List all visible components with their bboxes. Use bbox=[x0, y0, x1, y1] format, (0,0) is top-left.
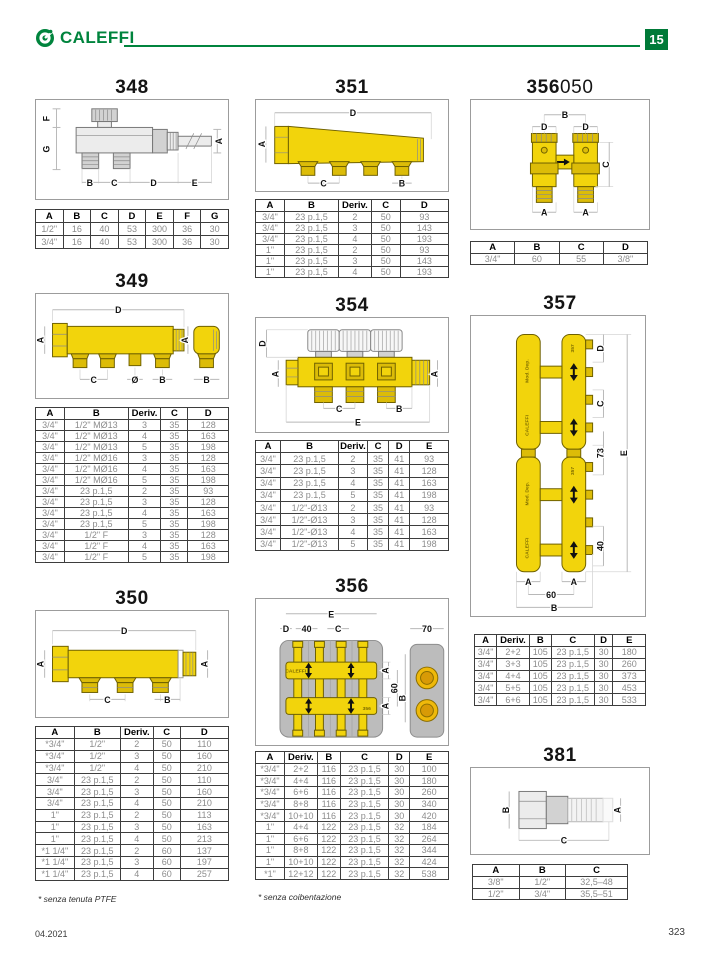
dim-label-d-left: D bbox=[541, 122, 548, 132]
column-header: C bbox=[161, 408, 188, 420]
dim-label-c: C bbox=[601, 161, 611, 168]
table-row: 3/4"5+510523 p.1,530453 bbox=[475, 682, 646, 694]
table-cell: 23 p.1,5 bbox=[64, 519, 128, 530]
table-cell: 50 bbox=[371, 223, 400, 234]
figure-dep-text-1: Mod. Dep. bbox=[524, 359, 530, 383]
table-cell: 23 p.1,5 bbox=[74, 809, 120, 821]
table-row: *3/4"8+811623 p.1,530340 bbox=[256, 798, 449, 810]
figure-model-text-1: 357 bbox=[570, 344, 576, 352]
table-cell: 163 bbox=[410, 526, 449, 538]
table-cell: 4 bbox=[120, 833, 153, 845]
column-header: Deriv. bbox=[338, 441, 367, 453]
table-row: 3/4"1/2" F335128 bbox=[36, 530, 229, 541]
table-row: 3/4"1/2" MØ13435163 bbox=[36, 431, 229, 442]
dimension-table-351: ABDeriv.CD3/4"23 p.1,5250933/4"23 p.1,53… bbox=[255, 199, 449, 278]
dim-label-diameter: Ø bbox=[132, 375, 139, 385]
table-cell: 2 bbox=[120, 739, 153, 751]
footnote-350: * senza tenuta PTFE bbox=[38, 894, 116, 904]
table-row: *3/4"2+211623 p.1,530100 bbox=[256, 764, 449, 776]
table-cell: 3/8" bbox=[473, 877, 520, 889]
table-cell: 23 p.1,5 bbox=[74, 856, 120, 868]
table-cell: 36 bbox=[173, 223, 201, 236]
table-header-row: ABDeriv.CD bbox=[256, 200, 449, 212]
table-cell: 50 bbox=[371, 256, 400, 267]
table-row: 3/4"4+410523 p.1,530373 bbox=[475, 670, 646, 682]
table-cell: 163 bbox=[188, 541, 229, 552]
dimension-table-348: ABCDEFG1/2"16405330036303/4"164053300363… bbox=[35, 209, 229, 249]
table-cell: 184 bbox=[410, 821, 449, 833]
table-cell: 35 bbox=[367, 453, 388, 465]
table-cell: *1 1/4" bbox=[36, 856, 75, 868]
table-cell: 36 bbox=[173, 236, 201, 249]
table-cell: 23 p.1,5 bbox=[74, 845, 120, 857]
table-cell: 50 bbox=[371, 267, 400, 278]
table-cell: 23 p.1,5 bbox=[551, 647, 594, 659]
table-cell: 1" bbox=[256, 845, 285, 857]
table-cell: 35 bbox=[161, 475, 188, 486]
table-row: 3/4"23 p.1,5350160 bbox=[36, 786, 229, 798]
table-header-row: ABCDEFG bbox=[36, 210, 229, 223]
table-cell: 2+2 bbox=[497, 647, 529, 659]
dim-label-c: C bbox=[336, 404, 343, 414]
table-cell: 23 p.1,5 bbox=[74, 868, 120, 880]
table-row: 1"23 p.1,5450193 bbox=[256, 267, 449, 278]
table-cell: 41 bbox=[389, 501, 410, 513]
column-header: G bbox=[201, 210, 229, 223]
table-cell: 35 bbox=[161, 541, 188, 552]
dim-label-a-left: A bbox=[525, 577, 532, 587]
table-row: 1/2"1640533003630 bbox=[36, 223, 229, 236]
column-header: E bbox=[410, 441, 449, 453]
table-cell: 41 bbox=[389, 526, 410, 538]
table-cell: 3/4" bbox=[256, 501, 281, 513]
table-cell: 41 bbox=[389, 453, 410, 465]
table-cell: 23 p.1,5 bbox=[281, 477, 339, 489]
table-cell: 1/2" MØ13 bbox=[64, 431, 128, 442]
modular-manifold-figure-357: Mod. Dep. CALEFFI 357 Mod. Dep. CALEFFI … bbox=[516, 335, 592, 572]
dim-label-c: C bbox=[320, 179, 327, 189]
table-cell: 3/4" bbox=[36, 453, 65, 464]
table-cell: 1/2" bbox=[74, 750, 120, 762]
diagram-354: D A A C B E bbox=[255, 317, 449, 433]
dim-label-d: D bbox=[350, 108, 356, 118]
table-row: 1"23 p.1,525093 bbox=[256, 245, 449, 256]
table-cell: 1/2" MØ13 bbox=[64, 442, 128, 453]
table-cell: 1" bbox=[256, 856, 285, 868]
table-cell: 41 bbox=[389, 465, 410, 477]
table-row: 1"4+412223 p.1,532184 bbox=[256, 821, 449, 833]
table-cell: 23 p.1,5 bbox=[551, 670, 594, 682]
table-cell: 3/4" bbox=[256, 526, 281, 538]
table-cell: 264 bbox=[410, 833, 449, 845]
table-cell: 40 bbox=[91, 236, 119, 249]
table-row: *3/4"4+411623 p.1,530180 bbox=[256, 775, 449, 787]
table-cell: 4 bbox=[120, 868, 153, 880]
table-cell: 3/4" bbox=[256, 234, 285, 245]
table-cell: 5 bbox=[128, 442, 161, 453]
figure-brand-text-2: CALEFFI bbox=[524, 537, 530, 558]
table-cell: 210 bbox=[180, 797, 228, 809]
table-cell: 128 bbox=[188, 497, 229, 508]
table-cell: 35 bbox=[367, 489, 388, 501]
table-row: 3/4"23 p.1,553541198 bbox=[256, 489, 449, 501]
column-header: Deriv. bbox=[497, 635, 529, 647]
dim-label-c: C bbox=[91, 375, 98, 385]
table-cell: 5 bbox=[338, 489, 367, 501]
h-valve-figure-356050 bbox=[530, 133, 599, 202]
table-cell: 4 bbox=[338, 526, 367, 538]
table-cell: 3/4" bbox=[475, 682, 497, 694]
table-cell: 198 bbox=[410, 489, 449, 501]
table-cell: 35 bbox=[367, 526, 388, 538]
dim-label-a-right: A bbox=[180, 336, 190, 343]
column-header: C bbox=[340, 752, 388, 764]
table-cell: *3/4" bbox=[256, 775, 285, 787]
table-cell: 116 bbox=[317, 798, 340, 810]
table-row: 3/4"23 p.1,523593 bbox=[36, 486, 229, 497]
table-cell: 35 bbox=[367, 538, 388, 550]
manifold-figure-350 bbox=[53, 646, 196, 692]
column-header: Deriv. bbox=[128, 408, 161, 420]
table-cell: 197 bbox=[180, 856, 228, 868]
table-cell: 23 p.1,5 bbox=[284, 267, 338, 278]
table-cell: 1/2"-Ø13 bbox=[281, 514, 339, 526]
table-row: 3/4"1/2"-Ø132354193 bbox=[256, 501, 449, 513]
table-cell: 30 bbox=[594, 647, 613, 659]
footer-date: 04.2021 bbox=[35, 929, 68, 939]
table-header-row: ABDeriv.CD bbox=[36, 408, 229, 420]
column-header: D bbox=[118, 210, 146, 223]
table-cell: 105 bbox=[529, 658, 551, 670]
table-cell: 160 bbox=[180, 750, 228, 762]
table-cell: 3/4" bbox=[36, 530, 65, 541]
table-cell: 60 bbox=[153, 845, 180, 857]
table-cell: 3 bbox=[128, 420, 161, 431]
table-cell: 50 bbox=[153, 739, 180, 751]
table-cell: 4 bbox=[120, 797, 153, 809]
column-header: Deriv. bbox=[284, 752, 317, 764]
table-cell: 41 bbox=[389, 538, 410, 550]
table-cell: 3/4" bbox=[256, 489, 281, 501]
table-cell: 137 bbox=[180, 845, 228, 857]
column-header: E bbox=[410, 752, 449, 764]
table-cell: 23 p.1,5 bbox=[64, 497, 128, 508]
table-cell: 116 bbox=[317, 787, 340, 799]
table-row: 3/4"23 p.1,533541128 bbox=[256, 465, 449, 477]
table-cell: 300 bbox=[146, 223, 174, 236]
table-cell: 50 bbox=[153, 750, 180, 762]
table-cell: 198 bbox=[188, 552, 229, 563]
table-cell: 4 bbox=[128, 508, 161, 519]
diagram-356050: B D D C A A bbox=[470, 99, 650, 230]
table-cell: 105 bbox=[529, 647, 551, 659]
table-cell: 3 bbox=[338, 465, 367, 477]
table-cell: 32 bbox=[389, 833, 410, 845]
table-cell: 163 bbox=[410, 477, 449, 489]
column-header: B bbox=[519, 865, 566, 877]
table-row: 1/2"3/4"35,5–51 bbox=[473, 888, 628, 900]
table-cell: 30 bbox=[594, 670, 613, 682]
dim-label-c: C bbox=[561, 836, 568, 846]
column-header: A bbox=[256, 441, 281, 453]
table-cell: 110 bbox=[180, 774, 228, 786]
dim-label-g: G bbox=[42, 145, 52, 152]
table-cell: 160 bbox=[180, 786, 228, 798]
table-cell: 3/4" bbox=[256, 477, 281, 489]
table-row: 3/4"1/2" MØ16535198 bbox=[36, 475, 229, 486]
table-cell: 122 bbox=[317, 821, 340, 833]
table-cell: 23 p.1,5 bbox=[340, 764, 388, 776]
table-cell: 60 bbox=[515, 254, 559, 265]
table-cell: 23 p.1,5 bbox=[340, 810, 388, 822]
table-row: *1"12+1212223 p.1,532538 bbox=[256, 868, 449, 880]
dim-label-c: C bbox=[111, 178, 118, 188]
table-cell: 193 bbox=[400, 234, 448, 245]
table-cell: 1" bbox=[256, 245, 285, 256]
table-cell: 538 bbox=[410, 868, 449, 880]
table-cell: 100 bbox=[410, 764, 449, 776]
table-cell: 23 p.1,5 bbox=[340, 833, 388, 845]
table-cell: 1/2"-Ø13 bbox=[281, 538, 339, 550]
table-cell: 122 bbox=[317, 845, 340, 857]
table-row: 3/4"1/2" MØ16335128 bbox=[36, 453, 229, 464]
table-cell: 300 bbox=[146, 236, 174, 249]
table-row: 1"23 p.1,5250113 bbox=[36, 809, 229, 821]
dim-label-b: B bbox=[562, 110, 568, 120]
chapter-badge: 15 bbox=[645, 29, 668, 50]
table-cell: 3/4" bbox=[36, 464, 65, 475]
dim-label-a-left: A bbox=[36, 660, 46, 667]
dim-label-73: 73 bbox=[595, 448, 605, 458]
table-cell: 128 bbox=[410, 514, 449, 526]
table-cell: 1/2" bbox=[74, 739, 120, 751]
dimension-table-381: ABC3/8"1/2"32,5–481/2"3/4"35,5–51 bbox=[472, 864, 628, 900]
table-cell: 93 bbox=[188, 486, 229, 497]
table-cell: *1 1/4" bbox=[36, 868, 75, 880]
table-cell: 4 bbox=[128, 464, 161, 475]
table-cell: 10+10 bbox=[284, 856, 317, 868]
table-cell: 260 bbox=[613, 658, 646, 670]
table-cell: 4 bbox=[128, 431, 161, 442]
table-cell: 2 bbox=[338, 501, 367, 513]
dimension-table-356050: ABCD3/4"60553/8" bbox=[470, 241, 648, 265]
column-header: E bbox=[146, 210, 174, 223]
table-cell: 193 bbox=[400, 267, 448, 278]
table-cell: 533 bbox=[613, 694, 646, 706]
table-header-row: ABC bbox=[473, 865, 628, 877]
table-cell: 23 p.1,5 bbox=[340, 856, 388, 868]
dimension-table-357: ADeriv.BCDE3/4"2+210523 p.1,5301803/4"3+… bbox=[474, 634, 646, 706]
table-cell: 3/4" bbox=[36, 442, 65, 453]
table-cell: 3 bbox=[338, 223, 371, 234]
title-350: 350 bbox=[35, 588, 229, 610]
table-cell: 40 bbox=[91, 223, 119, 236]
table-cell: 50 bbox=[153, 786, 180, 798]
table-cell: 105 bbox=[529, 694, 551, 706]
dim-label-d: D bbox=[258, 340, 268, 346]
table-cell: 60 bbox=[153, 868, 180, 880]
table-cell: 1/2" bbox=[74, 762, 120, 774]
column-header: C bbox=[551, 635, 594, 647]
table-row: 3/4"23 p.1,525093 bbox=[256, 212, 449, 223]
table-row: *1 1/4"23 p.1,5360197 bbox=[36, 856, 229, 868]
table-cell: 3 bbox=[120, 856, 153, 868]
manifold-figure-351 bbox=[275, 126, 424, 175]
table-cell: 35 bbox=[161, 552, 188, 563]
column-header: C bbox=[91, 210, 119, 223]
table-cell: 5 bbox=[338, 538, 367, 550]
table-cell: 12+12 bbox=[284, 868, 317, 880]
dim-label-d: D bbox=[595, 345, 605, 352]
table-row: 1"23 p.1,5350163 bbox=[36, 821, 229, 833]
table-row: 3/4"23 p.1,5450193 bbox=[256, 234, 449, 245]
table-row: 3/4"1/2"-Ø1343541163 bbox=[256, 526, 449, 538]
table-cell: 30 bbox=[201, 223, 229, 236]
table-row: *1 1/4"23 p.1,5260137 bbox=[36, 845, 229, 857]
column-header: Deriv. bbox=[120, 727, 153, 739]
dim-label-d: D bbox=[115, 305, 121, 315]
table-cell: 6+6 bbox=[284, 833, 317, 845]
table-cell: 3/4" bbox=[36, 431, 65, 442]
table-row: *1 1/4"23 p.1,5460257 bbox=[36, 868, 229, 880]
table-cell: 23 p.1,5 bbox=[281, 453, 339, 465]
table-cell: 420 bbox=[410, 810, 449, 822]
table-cell: 4 bbox=[120, 762, 153, 774]
table-cell: 5 bbox=[128, 519, 161, 530]
table-cell: 23 p.1,5 bbox=[74, 833, 120, 845]
figure-model-text: 356 bbox=[363, 706, 371, 712]
table-cell: 128 bbox=[410, 465, 449, 477]
dim-label-b: B bbox=[397, 695, 407, 701]
dim-label-e: E bbox=[192, 178, 198, 188]
table-header-row: ABDeriv.CD bbox=[36, 727, 229, 739]
diagram-381: B A C bbox=[470, 767, 650, 855]
insulated-manifold-figure-356: CALEFFI 356 bbox=[280, 640, 444, 737]
table-cell: 2 bbox=[128, 486, 161, 497]
table-cell: 23 p.1,5 bbox=[281, 465, 339, 477]
footer-page-number: 323 bbox=[640, 927, 685, 938]
column-header: Deriv. bbox=[338, 200, 371, 212]
table-cell: 5 bbox=[128, 552, 161, 563]
table-cell: 3/4" bbox=[471, 254, 515, 265]
table-cell: 128 bbox=[188, 420, 229, 431]
table-cell: 3/4" bbox=[256, 538, 281, 550]
dim-label-e: E bbox=[619, 450, 629, 456]
table-cell: 50 bbox=[153, 774, 180, 786]
dim-label-a-left: A bbox=[36, 336, 46, 343]
table-cell: 35 bbox=[161, 453, 188, 464]
table-cell: 3/4" bbox=[36, 519, 65, 530]
table-cell: 3/4" bbox=[36, 774, 75, 786]
table-cell: 35 bbox=[367, 465, 388, 477]
table-cell: 35 bbox=[161, 497, 188, 508]
table-cell: 5+5 bbox=[497, 682, 529, 694]
table-cell: 163 bbox=[180, 821, 228, 833]
dim-label-a-left: A bbox=[541, 208, 548, 218]
table-cell: 3/4" bbox=[475, 670, 497, 682]
diagram-356: CALEFFI 356 E D 40 C 70 A A 60 B bbox=[255, 598, 449, 746]
table-cell: *1" bbox=[256, 868, 285, 880]
column-header: A bbox=[36, 727, 75, 739]
column-header: C bbox=[153, 727, 180, 739]
table-cell: 23 p.1,5 bbox=[64, 486, 128, 497]
table-cell: 3/4" bbox=[475, 694, 497, 706]
table-cell: 2 bbox=[338, 245, 371, 256]
table-cell: 143 bbox=[400, 256, 448, 267]
valve-figure-348 bbox=[76, 109, 211, 169]
dim-label-a-right: A bbox=[582, 208, 589, 218]
table-cell: 3 bbox=[120, 786, 153, 798]
table-cell: *3/4" bbox=[256, 798, 285, 810]
table-cell: 23 p.1,5 bbox=[340, 845, 388, 857]
table-cell: 23 p.1,5 bbox=[340, 775, 388, 787]
table-cell: 93 bbox=[410, 453, 449, 465]
table-cell: 50 bbox=[153, 797, 180, 809]
dim-label-c: C bbox=[104, 695, 111, 705]
table-cell: 32 bbox=[389, 845, 410, 857]
table-row: 3/4"1/2" F435163 bbox=[36, 541, 229, 552]
table-cell: 3 bbox=[120, 750, 153, 762]
table-row: 1"10+1012223 p.1,532424 bbox=[256, 856, 449, 868]
table-row: 3/4"23 p.1,5350143 bbox=[256, 223, 449, 234]
table-cell: 1/2" MØ16 bbox=[64, 453, 128, 464]
diagram-349: D A A C Ø B B bbox=[35, 293, 229, 399]
table-cell: 257 bbox=[180, 868, 228, 880]
dimension-table-349: ABDeriv.CD3/4"1/2" MØ133351283/4"1/2" MØ… bbox=[35, 407, 229, 563]
dim-label-b-elbow: B bbox=[203, 375, 209, 385]
dim-label-c: C bbox=[335, 624, 342, 634]
table-row: *3/4"1/2"450210 bbox=[36, 762, 229, 774]
column-header: B bbox=[74, 727, 120, 739]
fitting-figure-381 bbox=[519, 791, 613, 828]
table-cell: 23 p.1,5 bbox=[74, 797, 120, 809]
table-cell: 3/4" bbox=[36, 236, 64, 249]
figure-brand-text-1: CALEFFI bbox=[524, 414, 530, 435]
manifold-figure-354 bbox=[286, 330, 429, 403]
table-cell: 198 bbox=[188, 442, 229, 453]
table-row: 3/4"3+310523 p.1,530260 bbox=[475, 658, 646, 670]
brand-logo: CALEFFI bbox=[35, 28, 135, 48]
table-cell: 122 bbox=[317, 868, 340, 880]
table-cell: 30 bbox=[389, 787, 410, 799]
table-cell: 3/4" bbox=[36, 486, 65, 497]
column-header: C bbox=[367, 441, 388, 453]
table-row: 3/4"1/2" F535198 bbox=[36, 552, 229, 563]
table-cell: 2+2 bbox=[284, 764, 317, 776]
diagram-350: D A A C B bbox=[35, 610, 229, 718]
table-cell: *3/4" bbox=[36, 750, 75, 762]
table-cell: 1/2" MØ16 bbox=[64, 464, 128, 475]
dim-label-a: A bbox=[214, 137, 224, 144]
dim-label-a-left: A bbox=[270, 370, 280, 377]
table-cell: 3/8" bbox=[603, 254, 647, 265]
table-cell: 3/4" bbox=[256, 453, 281, 465]
table-cell: 10+10 bbox=[284, 810, 317, 822]
column-header: B bbox=[64, 408, 128, 420]
title-349: 349 bbox=[35, 271, 229, 293]
table-cell: 122 bbox=[317, 833, 340, 845]
table-header-row: ADeriv.BCDE bbox=[256, 752, 449, 764]
dim-label-a-bottom: A bbox=[381, 702, 391, 709]
column-header: D bbox=[389, 441, 410, 453]
table-cell: 60 bbox=[153, 856, 180, 868]
column-header: B bbox=[317, 752, 340, 764]
column-header: F bbox=[173, 210, 201, 223]
table-cell: 340 bbox=[410, 798, 449, 810]
table-cell: 23 p.1,5 bbox=[64, 508, 128, 519]
table-cell: 3/4" bbox=[36, 420, 65, 431]
table-cell: 1/2"-Ø13 bbox=[281, 526, 339, 538]
